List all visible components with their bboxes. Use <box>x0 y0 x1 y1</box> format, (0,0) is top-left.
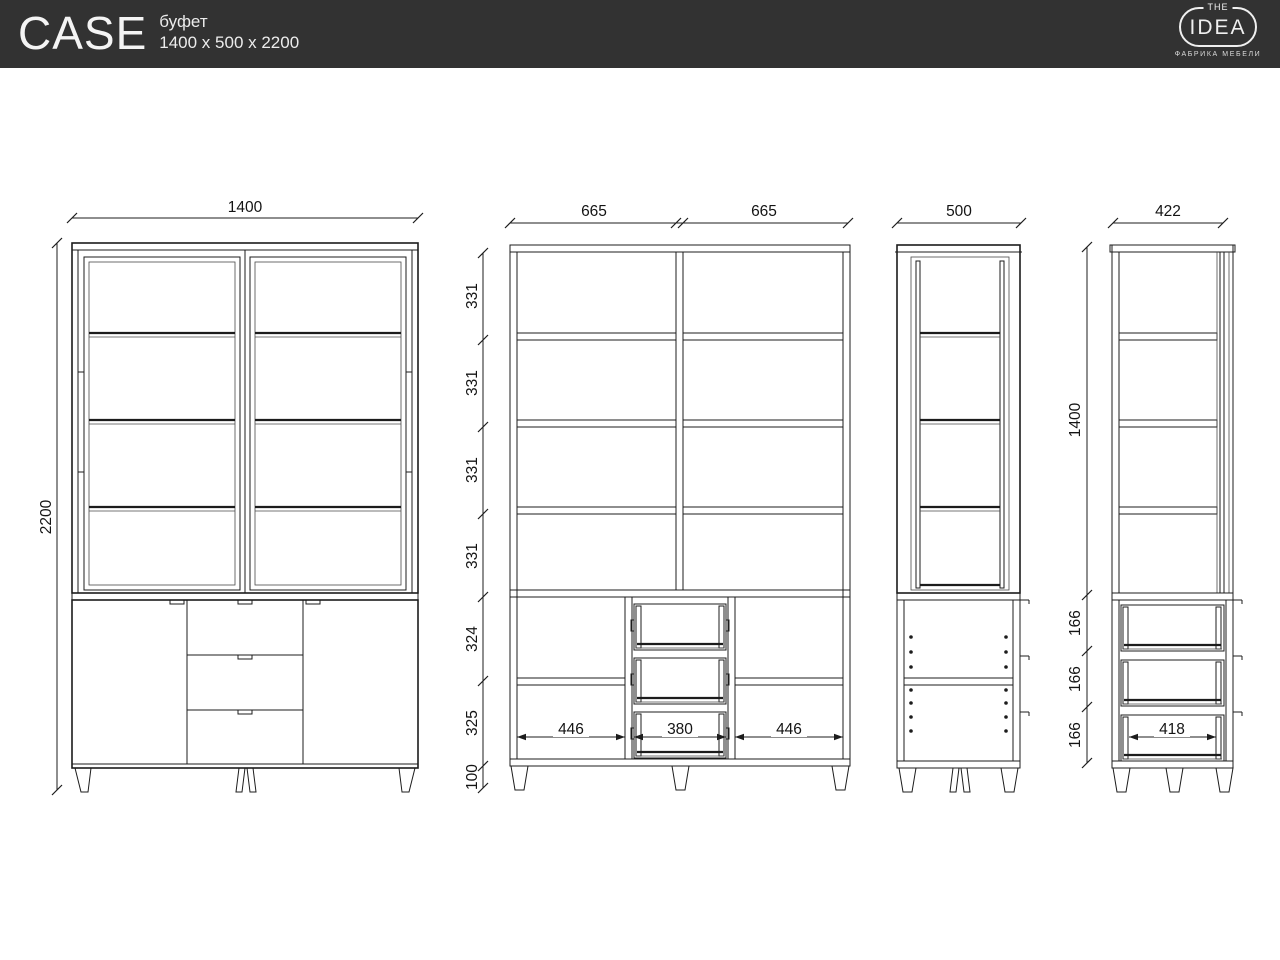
inner-width-label-2: 380 <box>667 721 693 738</box>
front-section-right-width-label: 665 <box>751 203 777 220</box>
front-width-label: 1400 <box>228 199 263 216</box>
front-view: 1400 2200 <box>38 199 423 795</box>
side-view-drawing <box>895 245 1029 792</box>
front-height-dimension: 2200 <box>38 238 62 795</box>
drawer-height-label-1: 166 <box>1067 610 1084 636</box>
lower-height-label-1: 324 <box>464 626 481 652</box>
side-section-drawer-width: 418 <box>1129 721 1216 740</box>
shelf-gap-label-1: 331 <box>464 283 481 309</box>
side-section-depth-label: 422 <box>1155 203 1181 220</box>
drawer-width-label: 418 <box>1159 721 1185 738</box>
technical-drawing: 1400 2200 <box>0 68 1280 960</box>
product-title: CASE <box>18 0 147 66</box>
front-section-view: 665 665 331 331 331 331 324 325 100 <box>464 203 853 793</box>
front-height-label: 2200 <box>38 499 55 534</box>
left-door-handle <box>78 372 84 472</box>
logo-oval: THE IDEA <box>1179 7 1257 47</box>
side-view: 500 <box>892 203 1029 792</box>
front-section-inner-widths: 446 380 446 <box>517 721 843 740</box>
product-type: буфет <box>159 11 299 32</box>
side-section-view: 422 1400 166 166 166 <box>1067 203 1242 792</box>
product-size: 1400 x 500 x 2200 <box>159 32 299 53</box>
drawer-height-label-3: 166 <box>1067 722 1084 748</box>
side-section-height-chain: 1400 166 166 166 <box>1067 242 1092 768</box>
front-width-dimension: 1400 <box>67 199 423 223</box>
logo-tagline: ФАБРИКА МЕБЕЛИ <box>1172 51 1264 58</box>
upper-height-label: 1400 <box>1067 402 1084 437</box>
front-section-drawing <box>510 245 850 790</box>
page: CASE буфет 1400 x 500 x 2200 THE IDEA ФА… <box>0 0 1280 960</box>
side-depth-dimension: 500 <box>892 203 1026 228</box>
side-section-drawing <box>1110 245 1242 792</box>
shelf-gap-label-3: 331 <box>464 457 481 483</box>
side-depth-label: 500 <box>946 203 972 220</box>
plinth-height-label: 100 <box>464 764 481 790</box>
side-section-depth-dimension: 422 <box>1108 203 1228 228</box>
title-bar: CASE буфет 1400 x 500 x 2200 THE IDEA ФА… <box>0 0 1280 68</box>
drawer-height-label-2: 166 <box>1067 666 1084 692</box>
shelf-gap-label-4: 331 <box>464 543 481 569</box>
front-section-height-chain: 331 331 331 331 324 325 100 <box>464 248 488 793</box>
front-view-drawing <box>72 243 418 792</box>
lower-height-label-2: 325 <box>464 710 481 736</box>
inner-width-label-1: 446 <box>558 721 584 738</box>
inner-width-label-3: 446 <box>776 721 802 738</box>
brand-logo: THE IDEA ФАБРИКА МЕБЕЛИ <box>1172 7 1264 58</box>
front-section-left-width-label: 665 <box>581 203 607 220</box>
logo-idea: IDEA <box>1189 16 1246 40</box>
shelf-gap-label-2: 331 <box>464 370 481 396</box>
right-door-handle <box>406 372 412 472</box>
product-subtitle-block: буфет 1400 x 500 x 2200 <box>159 11 299 53</box>
front-section-width-dimension: 665 665 <box>505 203 853 228</box>
logo-the: THE <box>1204 2 1233 12</box>
